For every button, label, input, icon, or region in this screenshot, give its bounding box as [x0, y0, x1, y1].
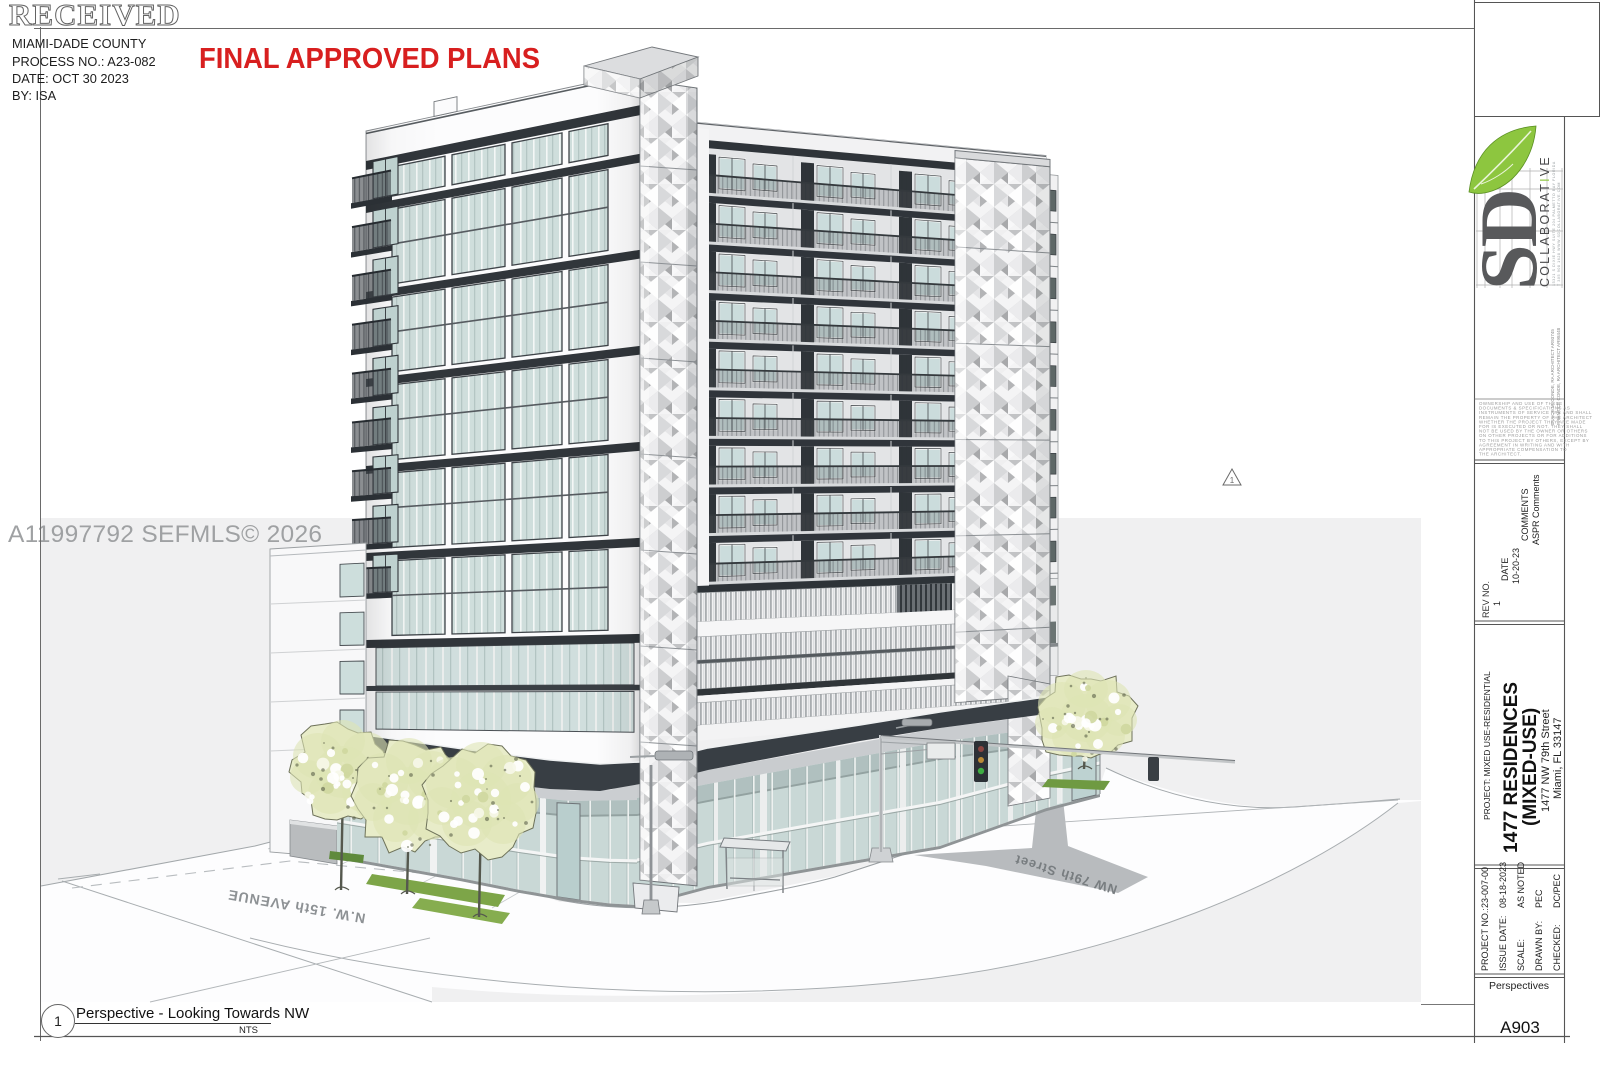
svg-text:Perspectives: Perspectives: [1489, 980, 1549, 992]
svg-text:PEC: PEC: [1534, 889, 1544, 908]
svg-text:PROJECT: MIXED USE-RESIDENTIAL: PROJECT: MIXED USE-RESIDENTIAL: [1482, 671, 1492, 820]
svg-text:COLLABORATIVE: COLLABORATIVE: [1538, 155, 1552, 287]
svg-text:15321 S DIXIE HWY SUITE 204 PA: 15321 S DIXIE HWY SUITE 204 PALMETTO BAY…: [1552, 161, 1556, 286]
svg-text:1477 RESIDENCES: 1477 RESIDENCES: [1501, 682, 1522, 853]
svg-text:NTS: NTS: [239, 1025, 258, 1036]
svg-text:AS NOTED: AS NOTED: [1516, 861, 1526, 908]
svg-text:MIAMI-DADE COUNTY: MIAMI-DADE COUNTY: [12, 36, 147, 51]
svg-text:FINAL APPROVED PLANS: FINAL APPROVED PLANS: [199, 43, 540, 75]
svg-text:1: 1: [1230, 476, 1235, 485]
svg-text:DRAWN BY:: DRAWN BY:: [1534, 921, 1544, 971]
svg-text:REV NO.: REV NO.: [1481, 581, 1491, 618]
svg-text:CHECKED:: CHECKED:: [1552, 924, 1562, 971]
svg-text:COMMENTS: COMMENTS: [1520, 489, 1530, 542]
svg-text:10-20-23: 10-20-23: [1511, 548, 1521, 584]
svg-text:ISSUE DATE:: ISSUE DATE:: [1498, 916, 1508, 971]
svg-text:DATE: DATE: [1500, 558, 1510, 581]
svg-text:08-18-2023: 08-18-2023: [1498, 862, 1508, 908]
svg-text:A903: A903: [1500, 1018, 1540, 1037]
svg-text:DATE: OCT 30 2023: DATE: OCT 30 2023: [12, 71, 129, 86]
svg-text:23-007-00: 23-007-00: [1480, 867, 1490, 908]
svg-text:1: 1: [1492, 601, 1502, 606]
svg-text:1: 1: [54, 1013, 62, 1029]
svg-text:DC/PEC: DC/PEC: [1552, 873, 1562, 908]
svg-text:SCALE:: SCALE:: [1516, 939, 1526, 971]
svg-text:1477 NW 79th Street: 1477 NW 79th Street: [1540, 709, 1552, 812]
svg-text:T 305 908 1628 WWW.SDCOLLABO: T 305 908 1628 WWW.SDCOLLABORATIVE.COM: [1557, 182, 1561, 286]
svg-text:Miami, FL 33147: Miami, FL 33147: [1552, 717, 1564, 799]
svg-text:PROJECT NO.:: PROJECT NO.:: [1480, 908, 1490, 971]
svg-text:Perspective - Looking Towards: Perspective - Looking Towards NW: [76, 1005, 310, 1022]
svg-text:A11997792 SEFMLS© 2026: A11997792 SEFMLS© 2026: [8, 521, 322, 548]
svg-text:ASPR Comments: ASPR Comments: [1531, 474, 1541, 545]
svg-text:BY: ISA: BY: ISA: [12, 88, 57, 103]
svg-text:THE ARCHITECT.: THE ARCHITECT.: [1479, 452, 1522, 457]
svg-text:RECEIVED: RECEIVED: [9, 0, 181, 32]
svg-text:PROCESS NO.: A23-082: PROCESS NO.: A23-082: [12, 54, 156, 69]
svg-text:(MIXED-USE): (MIXED-USE): [1520, 708, 1541, 826]
